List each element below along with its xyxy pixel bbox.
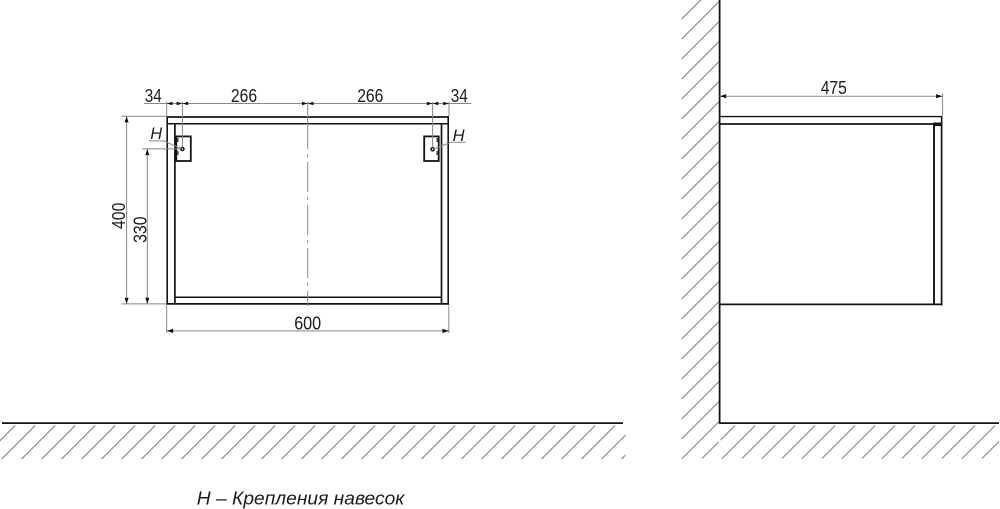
svg-text:475: 475 [821, 77, 847, 98]
svg-text:400: 400 [108, 203, 129, 229]
svg-text:266: 266 [231, 85, 257, 106]
svg-text:330: 330 [130, 217, 151, 243]
svg-text:Н – Крепления навесок: Н – Крепления навесок [197, 488, 406, 509]
svg-text:34: 34 [145, 85, 162, 106]
svg-text:266: 266 [357, 85, 383, 106]
svg-text:34: 34 [451, 85, 468, 106]
svg-text:H: H [150, 125, 162, 143]
svg-text:600: 600 [294, 313, 321, 334]
